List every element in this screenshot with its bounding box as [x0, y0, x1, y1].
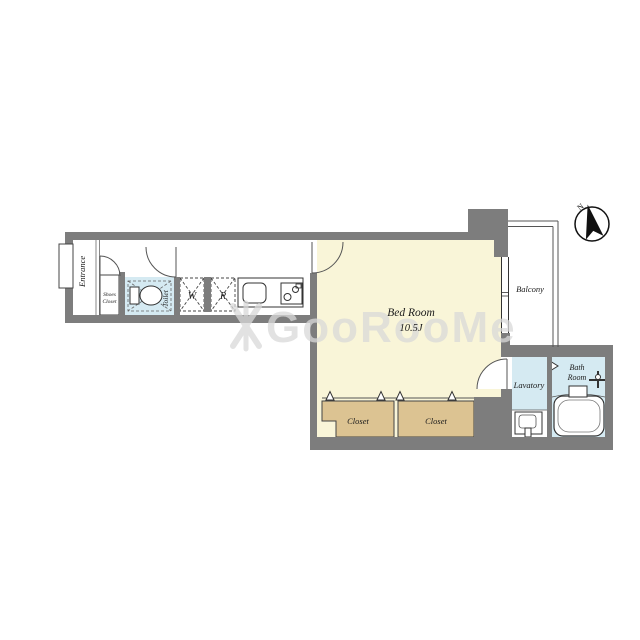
east-wall — [605, 345, 613, 450]
watermark-mark — [233, 303, 259, 349]
shoes-closet-label-line2: Closet — [102, 299, 117, 305]
bedroom-label: Bed Room — [387, 307, 435, 319]
lavatory-label: Lavatory — [513, 380, 545, 390]
lavatory-bath-divider-wall — [547, 357, 552, 437]
kitchen-sink — [243, 283, 266, 303]
toilet-right-wall — [174, 277, 180, 315]
entrance-label: Entrance — [77, 256, 87, 288]
bathroom-label-line2: Room — [567, 373, 587, 382]
shoes-closet-label-line1: Shoes — [103, 292, 116, 298]
bathroom-label-line1: Bath — [569, 363, 584, 372]
washbasin — [515, 412, 542, 437]
refrigerator-label: R — [219, 291, 226, 302]
kitchen-stove — [281, 283, 302, 304]
floor-plan-image: GooRooMe Entrance Shoes Closet Toilet W … — [0, 0, 640, 640]
closet-right-label: Closet — [425, 416, 447, 426]
closet-left-label: Closet — [347, 416, 369, 426]
toilet-door — [146, 247, 176, 277]
toilet-label: Toilet — [161, 289, 170, 307]
bedroom-size-label: 10.5J — [399, 323, 423, 334]
lavatory-west-wall — [501, 389, 512, 437]
bottom-wall — [310, 437, 613, 450]
left-wall-upper — [65, 232, 73, 244]
entrance-door — [59, 244, 73, 288]
top-wall — [65, 232, 494, 240]
compass: N — [575, 202, 609, 241]
watermark: GooRooMe — [233, 303, 517, 352]
toilet-left-wall — [119, 272, 125, 315]
shoes-closet-door — [100, 256, 120, 276]
balcony-label: Balcony — [516, 284, 544, 294]
bedroom-west-wall — [310, 273, 317, 450]
washer-fridge-divider-wall — [204, 277, 211, 312]
corner-wall-southeast-of-closet — [474, 397, 502, 437]
compass-n-label: N — [575, 202, 585, 213]
